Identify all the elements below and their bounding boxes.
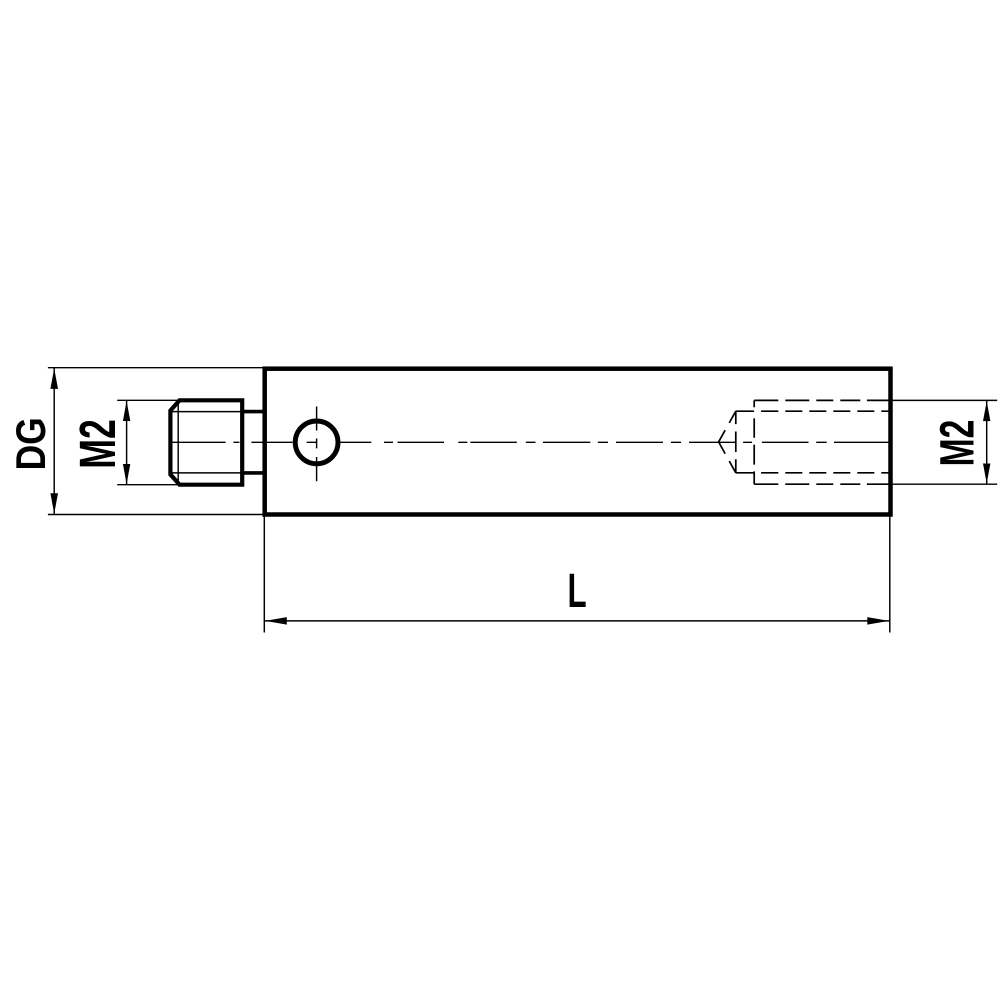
svg-text:L: L xyxy=(568,563,587,617)
svg-text:M2: M2 xyxy=(70,419,127,469)
svg-text:M2: M2 xyxy=(929,420,983,467)
svg-text:DG: DG xyxy=(8,417,54,470)
